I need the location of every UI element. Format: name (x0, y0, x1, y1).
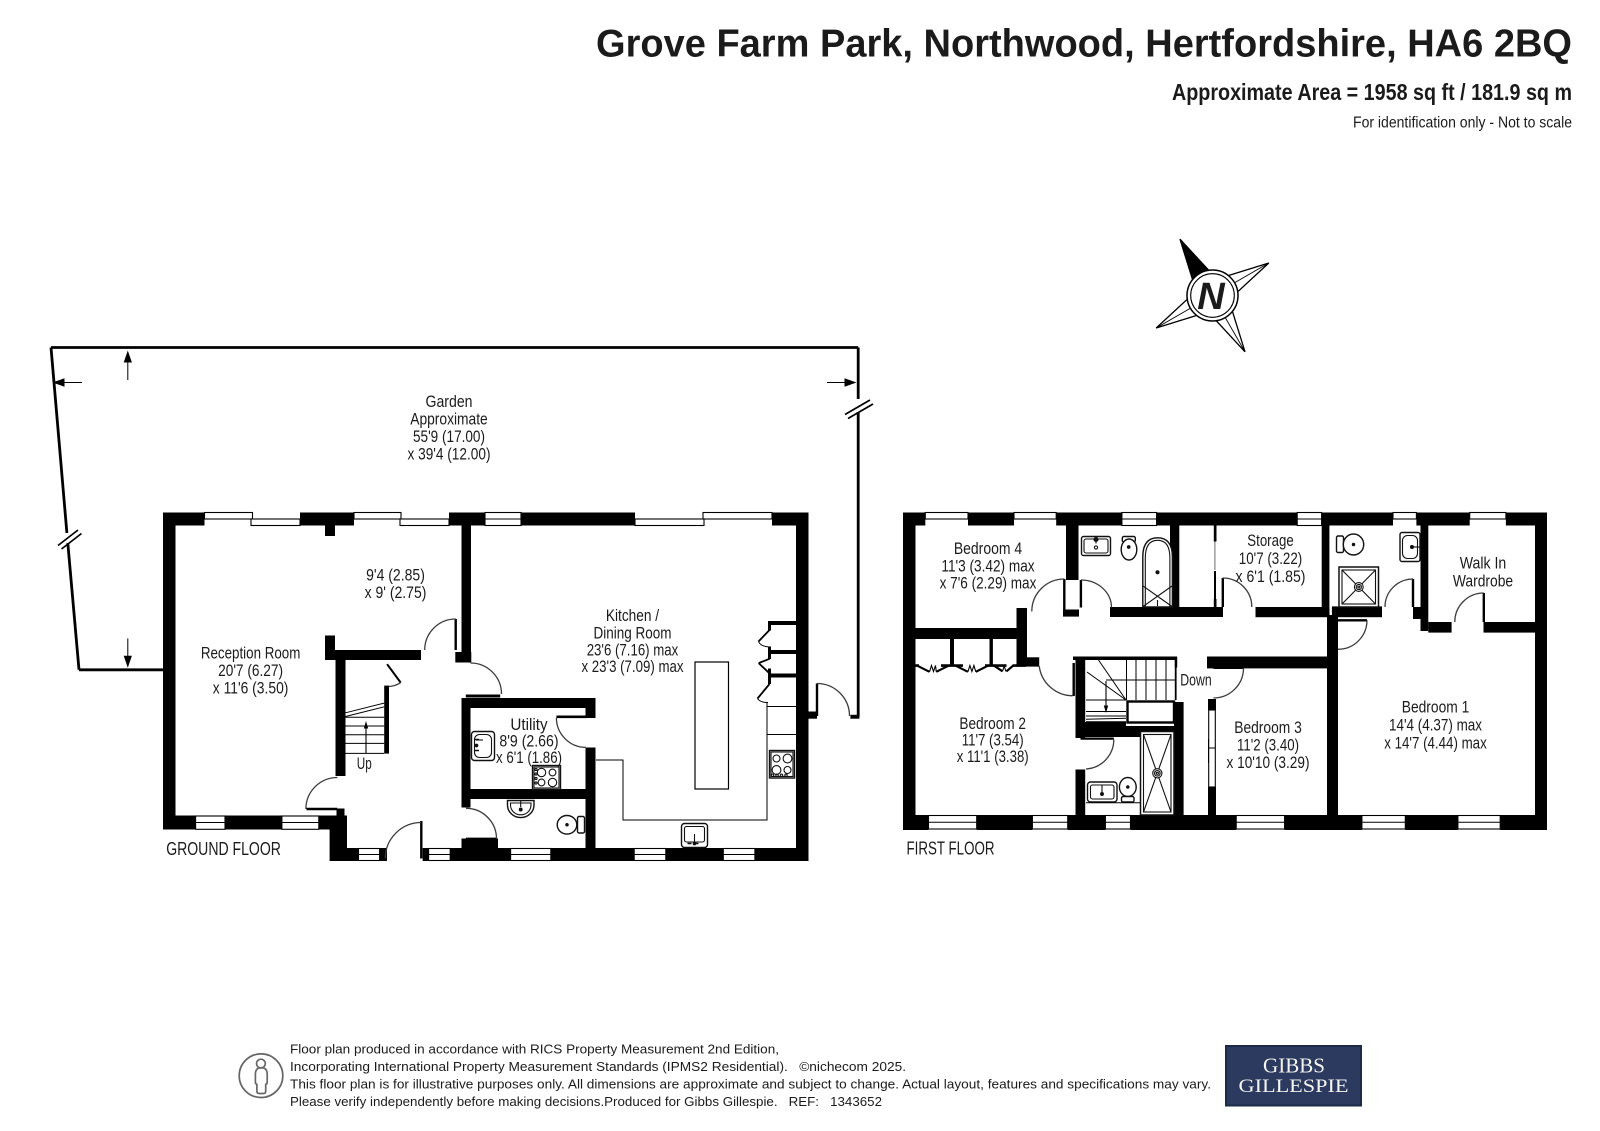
svg-text:Bedroom 3: Bedroom 3 (1234, 719, 1302, 737)
svg-text:Dining Room: Dining Room (594, 624, 672, 642)
svg-text:Bedroom 2: Bedroom 2 (959, 715, 1026, 733)
svg-text:x 39'4 (12.00): x 39'4 (12.00) (408, 446, 491, 464)
svg-text:x 6'1 (1.85): x 6'1 (1.85) (1236, 568, 1306, 586)
svg-text:Grove Farm Park, Northwood, He: Grove Farm Park, Northwood, Hertfordshir… (596, 23, 1572, 66)
svg-text:Down: Down (1180, 671, 1211, 689)
svg-text:Up: Up (357, 755, 372, 773)
svg-text:8'9 (2.66): 8'9 (2.66) (499, 733, 558, 751)
svg-text:x 14'7 (4.44) max: x 14'7 (4.44) max (1384, 734, 1487, 752)
svg-text:x 10'10 (3.29): x 10'10 (3.29) (1227, 754, 1310, 772)
svg-text:Floor plan produced in accorda: Floor plan produced in accordance with R… (290, 1042, 779, 1057)
svg-text:11'7 (3.54): 11'7 (3.54) (962, 732, 1024, 750)
svg-text:Storage: Storage (1247, 532, 1293, 550)
svg-text:x 7'6 (2.29) max: x 7'6 (2.29) max (940, 575, 1037, 593)
svg-text:Reception Room: Reception Room (201, 644, 301, 662)
svg-text:11'2 (3.40): 11'2 (3.40) (1237, 737, 1299, 755)
svg-text:Bedroom 4: Bedroom 4 (954, 540, 1022, 558)
svg-text:11'3 (3.42) max: 11'3 (3.42) max (941, 557, 1035, 575)
svg-text:Approximate Area = 1958 sq ft: Approximate Area = 1958 sq ft / 181.9 sq… (1172, 79, 1572, 105)
svg-text:GILLESPIE: GILLESPIE (1239, 1076, 1349, 1097)
svg-text:Approximate: Approximate (410, 411, 488, 429)
svg-text:x 11'1 (3.38): x 11'1 (3.38) (957, 748, 1029, 766)
svg-text:10'7 (3.22): 10'7 (3.22) (1239, 550, 1302, 568)
svg-text:x 23'3 (7.09) max: x 23'3 (7.09) max (582, 658, 685, 676)
svg-text:23'6 (7.16) max: 23'6 (7.16) max (587, 641, 679, 659)
svg-text:N: N (1197, 276, 1226, 318)
svg-text:Garden: Garden (426, 393, 473, 411)
svg-text:Walk In: Walk In (1460, 555, 1507, 573)
svg-text:20'7 (6.27): 20'7 (6.27) (218, 662, 283, 680)
svg-text:x 6'1 (1.86): x 6'1 (1.86) (496, 749, 562, 767)
svg-text:Please verify independently be: Please verify independently before makin… (290, 1094, 882, 1109)
svg-text:Bedroom 1: Bedroom 1 (1402, 699, 1470, 717)
svg-text:x 11'6 (3.50): x 11'6 (3.50) (213, 680, 289, 698)
svg-text:FIRST FLOOR: FIRST FLOOR (907, 838, 995, 859)
svg-text:For identification only - Not: For identification only - Not to scale (1353, 115, 1572, 132)
svg-text:Utility: Utility (510, 716, 548, 734)
svg-text:Wardrobe: Wardrobe (1453, 573, 1513, 591)
svg-text:Kitchen /: Kitchen / (606, 607, 660, 625)
svg-text:Incorporating International Pr: Incorporating International Property Mea… (290, 1059, 906, 1074)
svg-text:This floor plan is for illustr: This floor plan is for illustrative purp… (290, 1077, 1211, 1092)
svg-text:14'4 (4.37) max: 14'4 (4.37) max (1389, 716, 1483, 734)
svg-text:9'4 (2.85): 9'4 (2.85) (366, 567, 425, 585)
svg-text:x 9' (2.75): x 9' (2.75) (365, 584, 427, 602)
svg-text:55'9 (17.00): 55'9 (17.00) (413, 428, 485, 446)
svg-text:GIBBS: GIBBS (1263, 1054, 1325, 1078)
svg-text:GROUND FLOOR: GROUND FLOOR (166, 838, 281, 859)
